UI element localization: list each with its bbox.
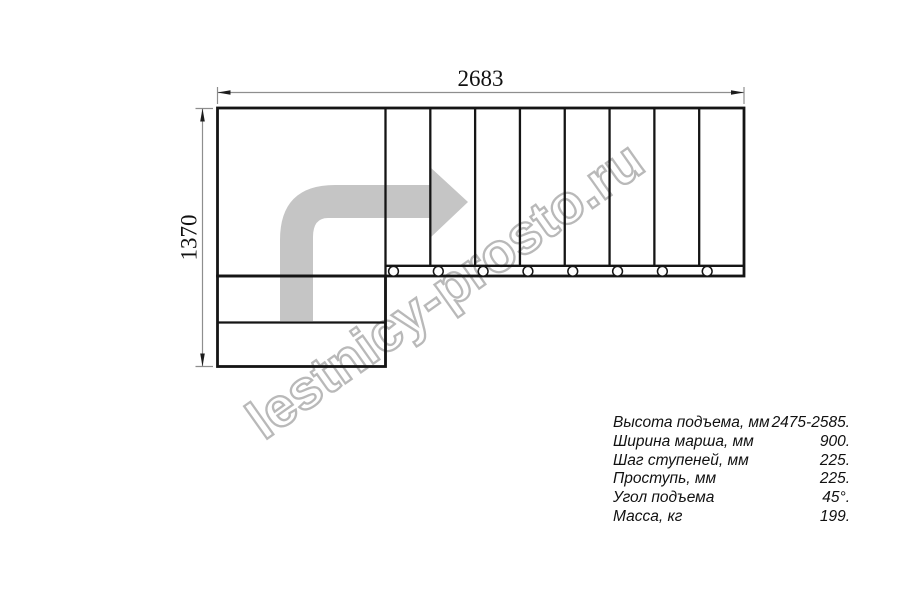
stair-plan-page: lestnicy-prosto.ru 2683 <box>0 0 900 600</box>
top-dim-arrow-right <box>731 90 744 95</box>
spec-row: Высота подъема, мм 2475-2585. <box>613 414 850 433</box>
step-bolt-circle <box>702 266 712 276</box>
spec-value: 2475-2585. <box>772 414 850 433</box>
spec-row: Масса, кг 199. <box>613 508 850 527</box>
spec-value: 45°. <box>822 489 850 508</box>
top-dim-arrow-left <box>218 90 231 95</box>
step-bolt-circle <box>657 266 667 276</box>
spec-row: Ширина марша, мм 900. <box>613 433 850 452</box>
spec-row: Угол подъема 45°. <box>613 489 850 508</box>
spec-label: Проступь, мм <box>613 470 716 489</box>
step-bolt-circle <box>433 266 443 276</box>
spec-row: Проступь, мм 225. <box>613 470 850 489</box>
spec-label: Шаг ступеней, мм <box>613 452 749 471</box>
spec-label: Ширина марша, мм <box>613 433 754 452</box>
spec-row: Шаг ступеней, мм 225. <box>613 452 850 471</box>
spec-value: 199. <box>820 508 850 527</box>
left-dim-arrow-bottom <box>200 354 205 367</box>
spec-value: 225. <box>820 470 850 489</box>
spec-label: Высота подъема, мм <box>613 414 770 433</box>
step-bolt-circle <box>523 266 533 276</box>
step-bolt-circle <box>478 266 488 276</box>
spec-label: Угол подъема <box>613 489 714 508</box>
step-bolt-circle <box>389 266 399 276</box>
step-bolt-circle <box>613 266 623 276</box>
spec-value: 900. <box>820 433 850 452</box>
spec-value: 225. <box>820 452 850 471</box>
spec-table: Высота подъема, мм 2475-2585. Ширина мар… <box>613 414 850 527</box>
width-dimension-label: 2683 <box>458 66 504 91</box>
height-dimension-label: 1370 <box>177 215 202 261</box>
spec-label: Масса, кг <box>613 508 682 527</box>
step-bolt-circle <box>568 266 578 276</box>
left-dim-arrow-top <box>200 109 205 122</box>
